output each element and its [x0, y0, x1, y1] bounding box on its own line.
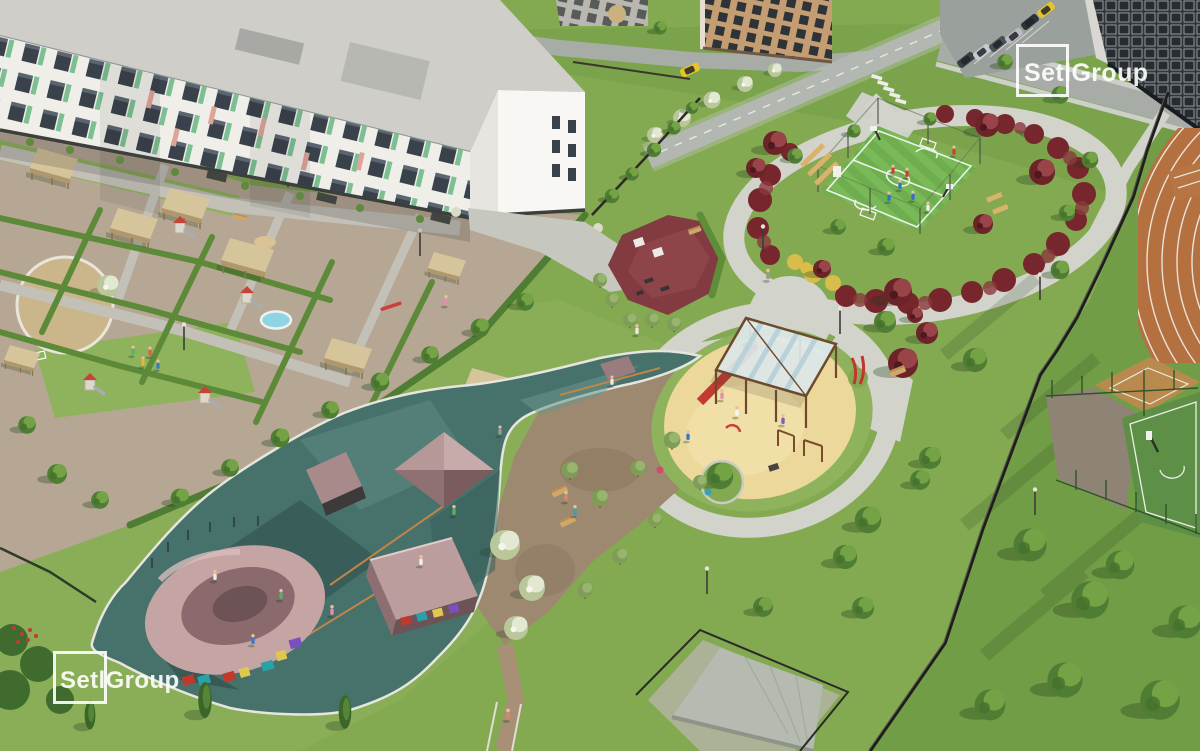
splash-pool [261, 312, 291, 329]
aerial-render: SetlGroup SetlGroup [0, 0, 1200, 751]
scene [0, 0, 1200, 751]
